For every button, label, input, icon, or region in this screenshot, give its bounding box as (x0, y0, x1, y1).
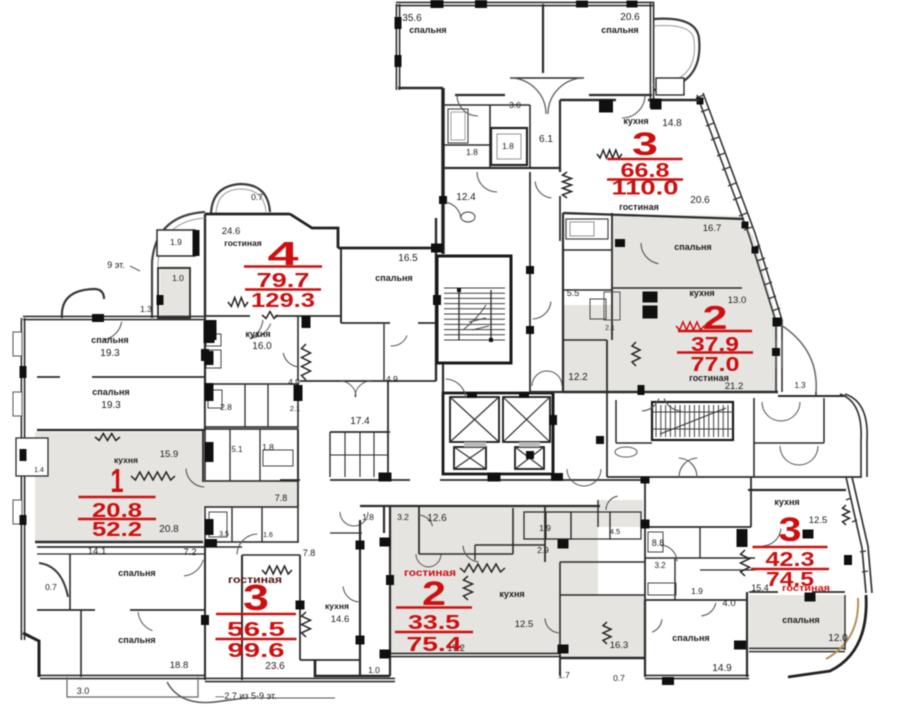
svg-text:110.0: 110.0 (612, 178, 679, 200)
svg-text:35.6: 35.6 (402, 13, 422, 24)
svg-text:77.0: 77.0 (691, 354, 740, 376)
svg-text:1.3: 1.3 (140, 304, 152, 314)
svg-text:кухня: кухня (245, 329, 270, 339)
svg-text:7.2: 7.2 (183, 547, 196, 558)
svg-text:1.9: 1.9 (539, 523, 551, 533)
svg-text:21.2: 21.2 (725, 381, 744, 392)
svg-text:3.0: 3.0 (77, 686, 90, 696)
svg-text:16.5: 16.5 (398, 253, 418, 264)
svg-text:6.1: 6.1 (539, 134, 553, 145)
svg-text:19.3: 19.3 (101, 400, 121, 411)
svg-text:19.3: 19.3 (100, 348, 120, 359)
svg-text:спальня: спальня (92, 387, 129, 397)
svg-text:спальня: спальня (375, 273, 412, 283)
svg-text:спальня: спальня (118, 568, 155, 578)
svg-text:75.4: 75.4 (407, 634, 463, 656)
svg-text:2.8: 2.8 (220, 402, 232, 412)
svg-text:2.9: 2.9 (537, 545, 549, 555)
svg-text:12.4: 12.4 (456, 192, 476, 203)
svg-text:1.6: 1.6 (263, 532, 273, 539)
svg-text:гостиная: гостиная (224, 238, 261, 248)
svg-text:20.8: 20.8 (159, 524, 179, 535)
svg-text:4.9: 4.9 (288, 377, 300, 387)
svg-text:18.8: 18.8 (170, 660, 189, 671)
svg-text:3: 3 (779, 511, 802, 549)
svg-text:3.2: 3.2 (654, 561, 666, 570)
svg-text:0.7: 0.7 (613, 673, 625, 683)
svg-text:спальня: спальня (409, 25, 446, 35)
svg-text:2.1: 2.1 (290, 404, 300, 413)
svg-text:1.7: 1.7 (558, 670, 570, 680)
svg-text:спальня: спальня (782, 615, 819, 625)
svg-text:кухня: кухня (499, 589, 524, 599)
svg-text:1.8: 1.8 (262, 442, 274, 452)
svg-text:2.1: 2.1 (605, 325, 615, 332)
svg-text:1.0: 1.0 (172, 273, 184, 283)
svg-text:16.3: 16.3 (610, 640, 629, 651)
svg-text:4.9: 4.9 (386, 374, 398, 384)
svg-text:52.2: 52.2 (92, 519, 142, 541)
svg-text:1.8: 1.8 (502, 141, 514, 151)
svg-text:12.5: 12.5 (809, 515, 828, 526)
svg-text:спальня: спальня (674, 242, 711, 252)
svg-text:0.7: 0.7 (45, 582, 57, 592)
svg-text:спальня: спальня (672, 633, 709, 643)
svg-text:8.8: 8.8 (652, 538, 665, 548)
svg-text:3: 3 (243, 577, 269, 618)
svg-text:14.9: 14.9 (712, 663, 732, 674)
svg-text:23.6: 23.6 (265, 661, 285, 672)
svg-text:13.0: 13.0 (728, 295, 747, 306)
svg-text:1.0: 1.0 (368, 665, 380, 675)
svg-text:129.3: 129.3 (251, 290, 315, 312)
svg-text:17.4: 17.4 (350, 416, 370, 427)
svg-text:14.8: 14.8 (662, 118, 682, 129)
svg-text:кухня: кухня (689, 288, 714, 298)
svg-text:5.5: 5.5 (567, 288, 580, 298)
svg-text:1: 1 (111, 462, 124, 499)
svg-text:12.0: 12.0 (828, 633, 848, 644)
svg-text:3: 3 (632, 126, 658, 162)
svg-text:0.7: 0.7 (251, 192, 263, 202)
svg-text:гостиная: гостиная (619, 202, 659, 212)
svg-text:1.8: 1.8 (466, 147, 478, 157)
svg-text:14.6: 14.6 (331, 614, 350, 625)
svg-text:кухня: кухня (325, 601, 349, 611)
svg-text:1.4: 1.4 (34, 467, 44, 474)
svg-text:16.0: 16.0 (252, 341, 272, 352)
svg-text:20.6: 20.6 (620, 12, 640, 23)
svg-text:14.1: 14.1 (88, 546, 107, 557)
svg-text:3.2: 3.2 (397, 512, 409, 522)
svg-text:5.1: 5.1 (231, 445, 243, 454)
svg-text:3.5: 3.5 (219, 531, 229, 538)
svg-text:спальня: спальня (601, 25, 638, 35)
svg-text:4.5: 4.5 (610, 527, 620, 536)
svg-text:4.0: 4.0 (722, 598, 735, 609)
svg-text:1.8: 1.8 (362, 512, 374, 522)
svg-text:16.7: 16.7 (703, 223, 722, 234)
svg-text:15.9: 15.9 (160, 449, 179, 460)
svg-text:9 эт.: 9 эт. (107, 260, 125, 270)
svg-text:7.8: 7.8 (303, 548, 316, 558)
svg-text:1.9: 1.9 (691, 586, 703, 596)
svg-text:кухня: кухня (623, 116, 648, 126)
svg-text:—2.7 из 5-9 эт.: —2.7 из 5-9 эт. (215, 691, 276, 701)
svg-text:1.9: 1.9 (170, 237, 182, 247)
svg-text:кухня: кухня (774, 497, 799, 507)
svg-text:спальня: спальня (118, 635, 155, 645)
svg-text:1.3: 1.3 (794, 381, 806, 390)
svg-text:7.8: 7.8 (275, 493, 288, 503)
svg-text:12.5: 12.5 (515, 619, 534, 630)
svg-text:12.2: 12.2 (568, 372, 588, 383)
svg-text:12.6: 12.6 (427, 513, 447, 524)
svg-text:спальня: спальня (91, 335, 128, 345)
svg-text:24.6: 24.6 (222, 226, 241, 237)
svg-text:74.5: 74.5 (766, 569, 814, 591)
svg-text:20.6: 20.6 (690, 195, 710, 206)
svg-text:3.0: 3.0 (509, 100, 521, 110)
svg-text:99.6: 99.6 (228, 640, 285, 662)
